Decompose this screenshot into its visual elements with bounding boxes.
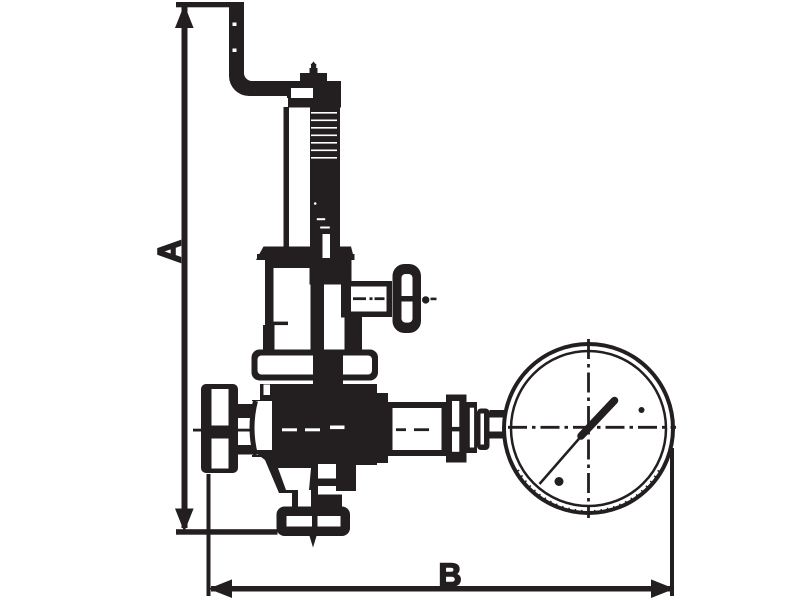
svg-text:A: A <box>152 240 188 263</box>
svg-text:B: B <box>438 557 461 593</box>
